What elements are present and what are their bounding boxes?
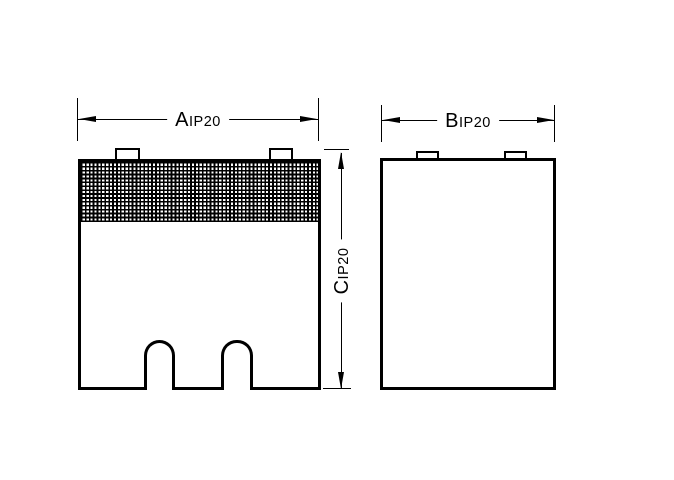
front-view-vent-grille xyxy=(81,162,318,222)
front-view-notch-left xyxy=(144,340,175,390)
dim-a-label: AIP20 xyxy=(167,110,229,130)
dim-b-label: BIP20 xyxy=(437,111,499,131)
dim-a-letter: A xyxy=(175,109,189,131)
figure-canvas: AIP20 BIP20 CIP20 xyxy=(0,0,674,480)
dim-a-arrowhead-left xyxy=(79,116,96,122)
dim-c-suffix: IP20 xyxy=(336,248,352,280)
dim-c-label: CIP20 xyxy=(332,240,352,303)
dim-c-extension-line-top xyxy=(324,149,349,150)
dim-b-arrowhead-right xyxy=(537,117,554,123)
front-view-notch-right xyxy=(221,340,253,390)
dim-b-arrowhead-left xyxy=(383,117,400,123)
dim-c-arrowhead-bottom xyxy=(338,372,344,389)
front-view-body xyxy=(78,159,321,390)
side-view-tab-right xyxy=(504,151,527,158)
dim-a-extension-line-right xyxy=(318,98,319,141)
dim-a-arrowhead-right xyxy=(300,116,317,122)
front-view-tab-right xyxy=(269,148,293,159)
dim-b-suffix: IP20 xyxy=(459,115,491,131)
side-view-tab-left xyxy=(416,151,439,158)
front-view-tab-left xyxy=(115,148,140,159)
dim-b-extension-line-right xyxy=(554,105,555,142)
dim-c-arrowhead-top xyxy=(338,152,344,169)
dim-a-suffix: IP20 xyxy=(189,114,221,130)
dim-b-extension-line-left xyxy=(381,105,382,142)
dim-c-letter: C xyxy=(331,279,353,294)
dim-b-letter: B xyxy=(445,110,459,132)
dim-c-extension-line-bottom xyxy=(323,388,351,389)
side-view-body xyxy=(380,158,556,390)
